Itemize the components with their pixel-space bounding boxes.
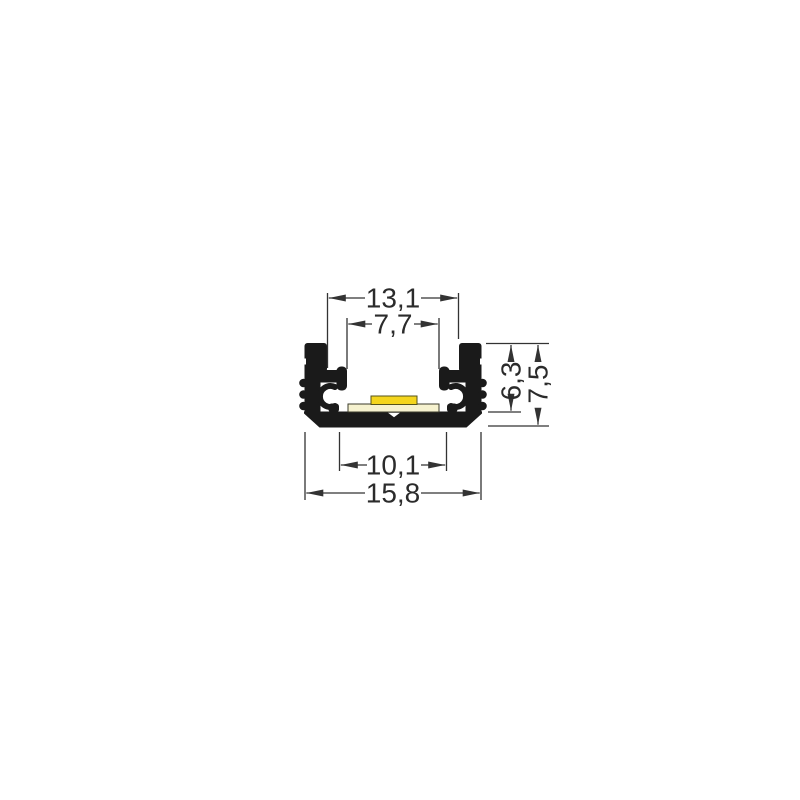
profile-right-side [439, 343, 487, 413]
technical-drawing: 13,1 7,7 6,3 7,5 10,1 15,8 [0, 0, 800, 800]
dimension-label-side-outer: 7,5 [523, 365, 554, 404]
led-chip [371, 396, 417, 405]
led-pcb [348, 404, 439, 412]
dimension-label-top-inner: 7,7 [374, 309, 413, 340]
profile-left-side [299, 343, 347, 413]
dimension-label-bottom-outer: 15,8 [366, 478, 421, 509]
drawing-canvas: 13,1 7,7 6,3 7,5 10,1 15,8 [0, 0, 800, 800]
dimension-label-bottom-inner: 10,1 [366, 450, 421, 481]
